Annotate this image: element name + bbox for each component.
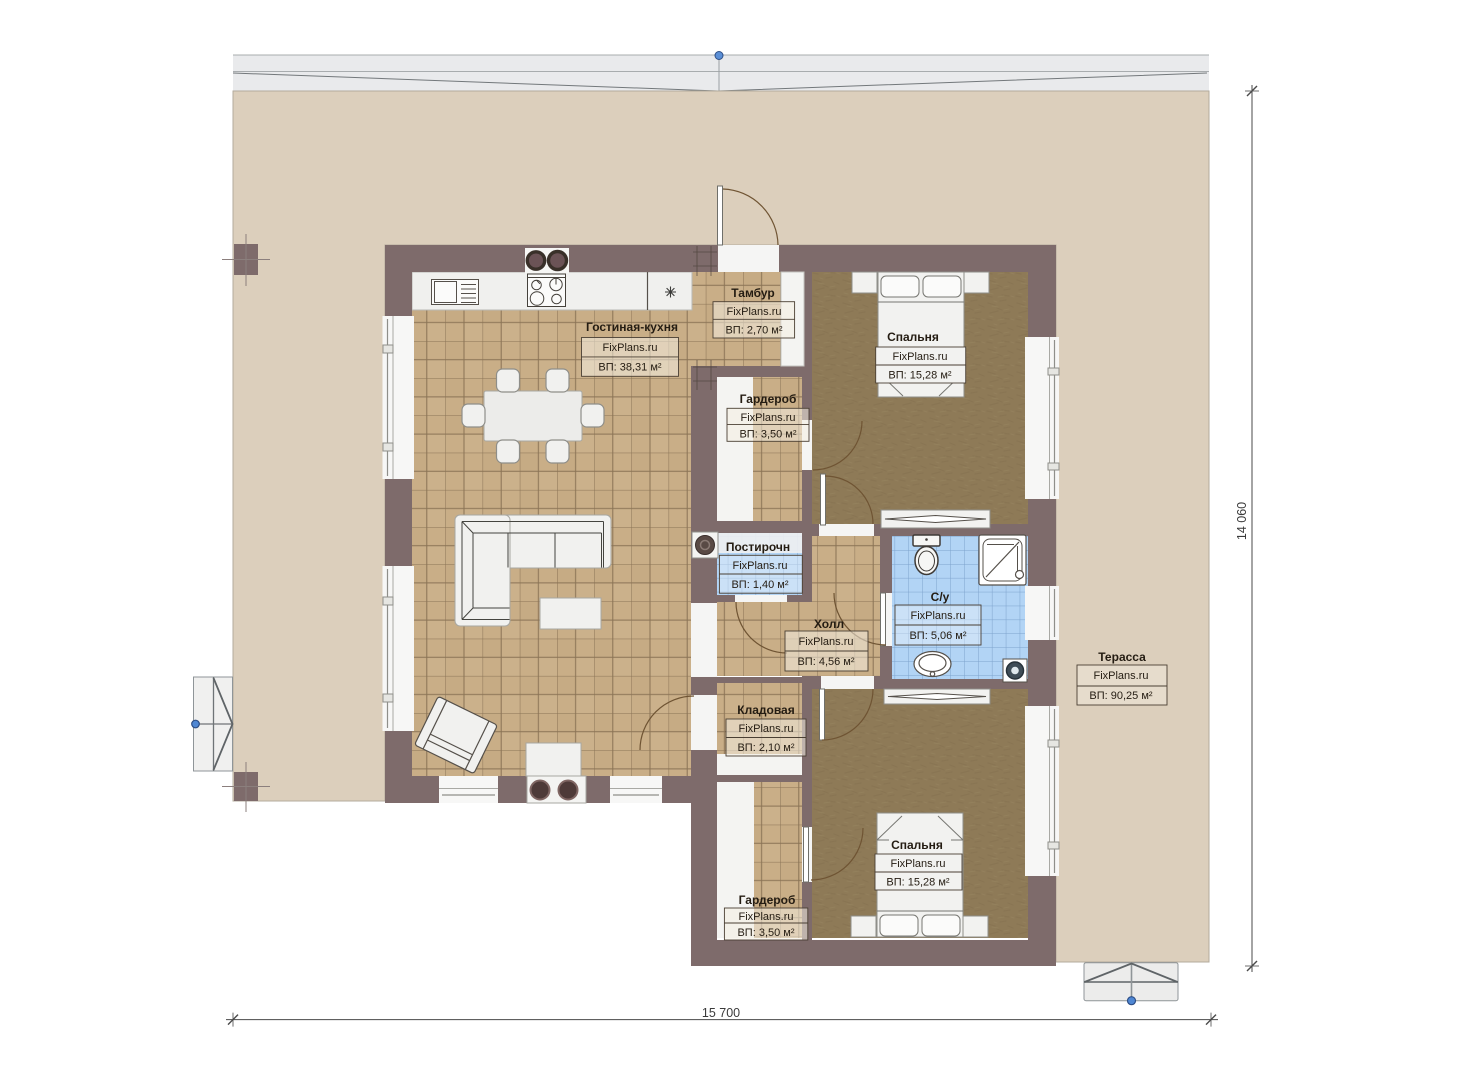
- svg-text:ВП: 4,56 м²: ВП: 4,56 м²: [797, 656, 854, 668]
- svg-text:FixPlans.ru: FixPlans.ru: [738, 911, 793, 923]
- svg-text:ВП: 15,28 м²: ВП: 15,28 м²: [888, 370, 952, 382]
- svg-text:Холл: Холл: [814, 617, 844, 631]
- svg-text:Кладовая: Кладовая: [737, 703, 794, 717]
- svg-text:ВП: 2,10 м²: ВП: 2,10 м²: [737, 742, 794, 754]
- svg-text:ВП: 3,50 м²: ВП: 3,50 м²: [739, 429, 796, 441]
- svg-text:14 060: 14 060: [1235, 502, 1249, 540]
- svg-text:Гардероб: Гардероб: [739, 893, 796, 907]
- svg-text:ВП: 2,70 м²: ВП: 2,70 м²: [725, 325, 782, 337]
- svg-text:15 700: 15 700: [702, 1006, 740, 1020]
- svg-text:Спальня: Спальня: [887, 330, 939, 344]
- svg-text:ВП: 5,06 м²: ВП: 5,06 м²: [909, 630, 966, 642]
- svg-text:ВП: 1,40 м²: ВП: 1,40 м²: [731, 579, 788, 591]
- svg-text:ВП: 38,31 м²: ВП: 38,31 м²: [598, 362, 662, 374]
- svg-text:FixPlans.ru: FixPlans.ru: [1093, 670, 1148, 682]
- svg-text:FixPlans.ru: FixPlans.ru: [732, 560, 787, 572]
- svg-text:FixPlans.ru: FixPlans.ru: [726, 306, 781, 318]
- svg-text:С/у: С/у: [931, 590, 950, 604]
- svg-text:FixPlans.ru: FixPlans.ru: [738, 723, 793, 735]
- svg-text:FixPlans.ru: FixPlans.ru: [602, 342, 657, 354]
- svg-text:Постирочн: Постирочн: [726, 540, 790, 554]
- svg-text:FixPlans.ru: FixPlans.ru: [892, 351, 947, 363]
- svg-text:ВП: 3,50 м²: ВП: 3,50 м²: [737, 927, 794, 939]
- svg-text:Спальня: Спальня: [891, 838, 943, 852]
- svg-text:Гостиная-кухня: Гостиная-кухня: [586, 320, 678, 334]
- svg-text:Терасса: Терасса: [1098, 650, 1146, 664]
- svg-text:FixPlans.ru: FixPlans.ru: [740, 412, 795, 424]
- svg-text:Тамбур: Тамбур: [731, 286, 775, 300]
- svg-text:ВП: 15,28 м²: ВП: 15,28 м²: [886, 877, 950, 889]
- svg-text:ВП: 90,25 м²: ВП: 90,25 м²: [1089, 690, 1153, 702]
- svg-text:FixPlans.ru: FixPlans.ru: [910, 610, 965, 622]
- svg-text:Гардероб: Гардероб: [740, 392, 797, 406]
- svg-text:FixPlans.ru: FixPlans.ru: [890, 858, 945, 870]
- svg-text:FixPlans.ru: FixPlans.ru: [798, 636, 853, 648]
